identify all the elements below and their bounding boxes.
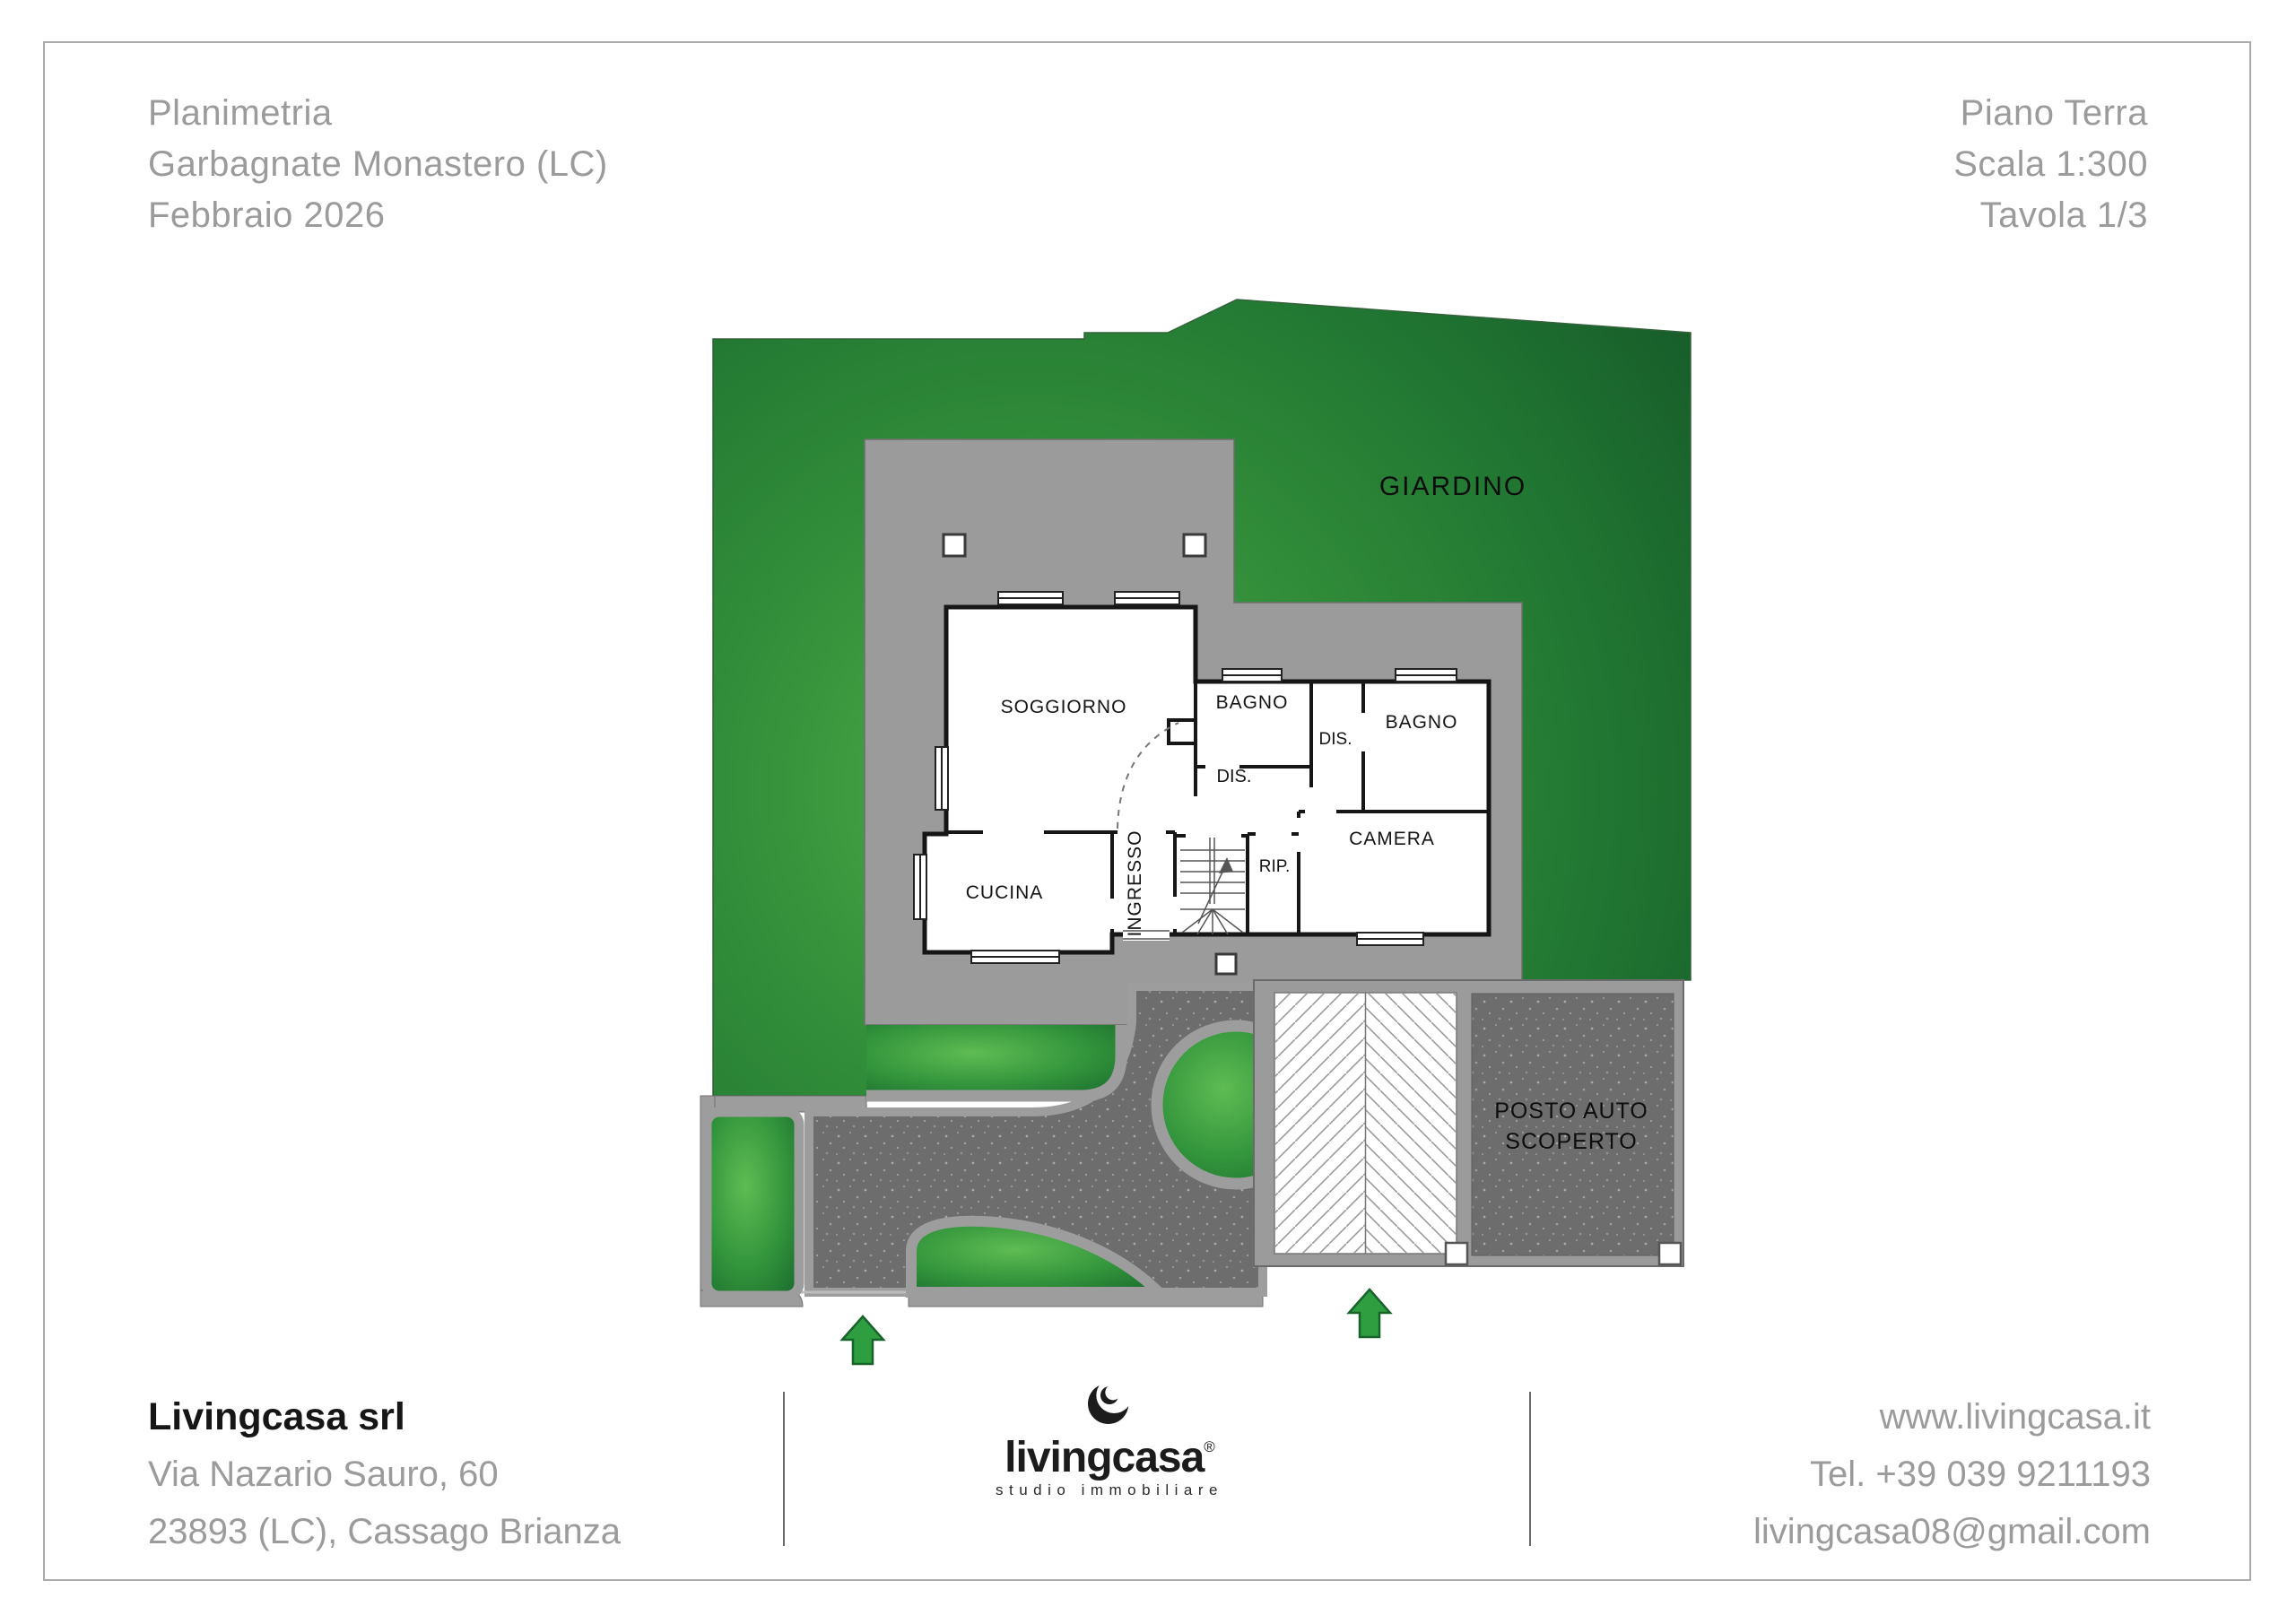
company-address-line2: 23893 (LC), Cassago Brianza [148,1503,621,1560]
lawn-tongue [866,1025,1121,1096]
patio-post-1 [944,534,965,556]
logo-tagline: studio immobiliare [975,1481,1244,1499]
room-label-soggiorno: SOGGIORNO [1001,697,1127,717]
patio-post-2 [1184,534,1205,556]
company-address-line1: Via Nazario Sauro, 60 [148,1446,621,1503]
registered-mark: ® [1204,1438,1214,1455]
fence-post-2 [1659,1243,1681,1264]
company-logo: livingcasa® studio immobiliare [975,1377,1244,1499]
footer-contact-block: www.livingcasa.it Tel. +39 039 9211193 l… [1753,1388,2151,1560]
driveway-hatch-left [1274,993,1365,1254]
room-label-bagno-top: BAGNO [1216,692,1289,713]
garden-label: GIARDINO [1379,472,1526,501]
crescent-moon-icon [1066,1377,1152,1428]
room-label-cucina: CUCINA [966,882,1044,903]
company-website: www.livingcasa.it [1753,1388,2151,1446]
driveway-hatch-right [1365,993,1457,1254]
parking-label-line2: SCOPERTO [1505,1129,1637,1154]
room-label-dis-center: DIS. [1217,767,1252,786]
room-label-bagno-right: BAGNO [1386,712,1458,733]
logo-name: livingcasa [1004,1434,1204,1481]
entrance-arrow-icon [842,1316,883,1364]
footer-company-block: Livingcasa srl Via Nazario Sauro, 60 238… [148,1388,621,1560]
patio-post-3 [1216,954,1236,974]
parking-spot [1472,994,1674,1255]
footer-divider-right [1529,1392,1531,1546]
driveway-arrow-icon [1349,1290,1390,1337]
room-label-dis-right: DIS. [1319,730,1352,749]
parking-label-line1: POSTO AUTO [1494,1099,1648,1124]
company-email: livingcasa08@gmail.com [1753,1503,2151,1560]
lawn-left-patch [707,1112,799,1296]
company-name: Livingcasa srl [148,1388,621,1446]
room-label-rip: RIP. [1259,857,1291,876]
room-label-ingresso: INGRESSO [1125,830,1145,937]
room-label-camera: CAMERA [1349,829,1435,849]
logo-wordmark: livingcasa® [975,1428,1244,1478]
footer-divider-left [783,1392,785,1546]
company-phone: Tel. +39 039 9211193 [1753,1446,2151,1503]
fence-post-1 [1446,1243,1467,1264]
